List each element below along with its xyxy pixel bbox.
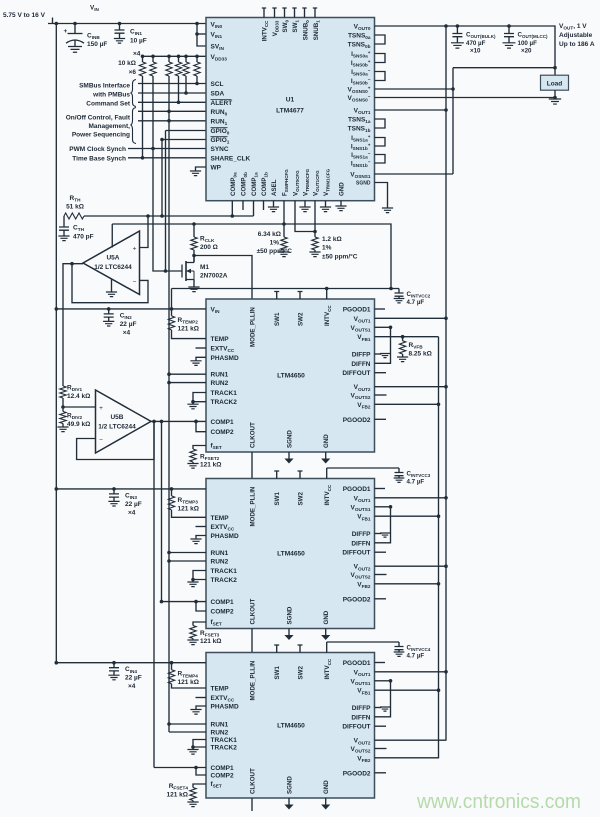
svg-text:DIFFN: DIFFN	[351, 714, 370, 721]
svg-text:22 µF: 22 µF	[120, 321, 137, 328]
svg-text:1.2 kΩ: 1.2 kΩ	[322, 236, 342, 243]
svg-text:10 µF: 10 µF	[130, 38, 147, 45]
svg-text:COMP1: COMP1	[211, 599, 235, 606]
svg-text:M1: M1	[200, 264, 209, 271]
svg-text:ALERT: ALERT	[211, 100, 233, 107]
svg-text:1/2 LTC6244: 1/2 LTC6244	[94, 264, 132, 271]
svg-text:PHASMD: PHASMD	[211, 355, 239, 362]
svg-text:DIFFOUT: DIFFOUT	[342, 550, 370, 557]
svg-text:RUN1: RUN1	[211, 550, 229, 557]
svg-text:121 kΩ: 121 kΩ	[200, 638, 221, 645]
svg-text:GND: GND	[323, 434, 330, 448]
svg-text:PGOOD1: PGOOD1	[343, 486, 371, 493]
svg-text:470 µF: 470 µF	[466, 40, 486, 47]
svg-text:470 pF: 470 pF	[73, 234, 94, 241]
svg-text:DIFFOUT: DIFFOUT	[342, 724, 370, 731]
svg-text:×4: ×4	[128, 509, 136, 516]
svg-text:SW2: SW2	[298, 666, 305, 680]
svg-text:PHASMD: PHASMD	[211, 533, 239, 540]
svg-text:121 kΩ: 121 kΩ	[167, 792, 188, 799]
svg-text:WP: WP	[211, 165, 222, 172]
svg-text:2N7002A: 2N7002A	[200, 273, 228, 280]
svg-text:CLKOUT: CLKOUT	[250, 599, 257, 625]
svg-text:×4: ×4	[123, 329, 131, 336]
svg-text:PGOOD1: PGOOD1	[343, 307, 371, 314]
svg-text:×4: ×4	[133, 51, 141, 58]
svg-text:TEMP: TEMP	[211, 686, 230, 693]
svg-text:CLKOUT: CLKOUT	[250, 768, 257, 794]
svg-text:ASEL: ASEL	[271, 179, 278, 196]
svg-text:www.cntronics.com: www.cntronics.com	[416, 790, 581, 813]
svg-text:SW1: SW1	[274, 492, 281, 506]
svg-text:Command Set: Command Set	[86, 101, 131, 108]
svg-text:121 kΩ: 121 kΩ	[178, 505, 199, 512]
svg-text:6.34 kΩ: 6.34 kΩ	[258, 231, 281, 238]
svg-text:121 kΩ: 121 kΩ	[178, 679, 199, 686]
svg-text:MODE_PLLIN: MODE_PLLIN	[250, 486, 257, 526]
svg-text:Up to 186 A: Up to 186 A	[559, 41, 595, 48]
svg-text:150 µF: 150 µF	[87, 41, 107, 48]
svg-text:51 kΩ: 51 kΩ	[66, 204, 84, 211]
svg-text:TRACK1: TRACK1	[211, 568, 238, 575]
svg-text:COMP2: COMP2	[211, 773, 235, 780]
svg-text:121 kΩ: 121 kΩ	[178, 325, 199, 332]
svg-text:±50 ppm/°C: ±50 ppm/°C	[322, 253, 358, 261]
svg-text:Adjustable: Adjustable	[559, 32, 593, 39]
svg-text:DIFFN: DIFFN	[351, 540, 370, 547]
svg-text:VOUT, 1 V: VOUT, 1 V	[559, 23, 587, 31]
svg-text:LTM4650: LTM4650	[277, 373, 305, 380]
svg-text:COMP2: COMP2	[211, 609, 235, 616]
svg-text:12.4 kΩ: 12.4 kΩ	[67, 393, 90, 400]
svg-text:PGOOD1: PGOOD1	[343, 660, 371, 667]
svg-text:TEMP: TEMP	[211, 515, 230, 522]
svg-text:1/2 LTC6244: 1/2 LTC6244	[98, 424, 136, 431]
svg-text:MODE_PLLIN: MODE_PLLIN	[250, 307, 257, 347]
svg-text:COMP2: COMP2	[211, 429, 235, 436]
svg-text:LTM4650: LTM4650	[277, 722, 305, 729]
svg-text:GND: GND	[323, 610, 330, 624]
svg-text:SW1: SW1	[274, 312, 281, 326]
svg-text:5.75 V to 16 V: 5.75 V to 16 V	[3, 12, 46, 19]
svg-text:On/Off Control, Fault: On/Off Control, Fault	[66, 115, 131, 122]
svg-text:PGOOD2: PGOOD2	[343, 596, 371, 603]
svg-text:RUN1: RUN1	[211, 722, 229, 729]
svg-text:Power Sequencing: Power Sequencing	[72, 132, 130, 139]
svg-text:+: +	[133, 246, 137, 253]
svg-text:SGND: SGND	[287, 776, 294, 794]
svg-text:4.7 µF: 4.7 µF	[407, 299, 425, 306]
svg-text:U5A: U5A	[106, 255, 119, 262]
svg-text:×4: ×4	[128, 683, 136, 690]
svg-text:TRACK2: TRACK2	[211, 577, 238, 584]
svg-text:SGND: SGND	[356, 181, 371, 187]
svg-text:LTM4650: LTM4650	[277, 551, 305, 558]
svg-text:PHASMD: PHASMD	[211, 704, 239, 711]
svg-text:PWM Clock Synch: PWM Clock Synch	[69, 146, 126, 153]
svg-text:100 µF: 100 µF	[518, 40, 538, 47]
svg-text:PGOOD2: PGOOD2	[343, 417, 371, 424]
svg-text:×6: ×6	[129, 69, 137, 76]
svg-text:1%: 1%	[322, 245, 332, 252]
svg-text:4.7 µF: 4.7 µF	[407, 479, 425, 486]
svg-text:SMBus Interface: SMBus Interface	[79, 83, 130, 90]
svg-text:DIFFP: DIFFP	[352, 352, 371, 359]
svg-text:Time Base Synch: Time Base Synch	[72, 155, 126, 162]
svg-text:22 µF: 22 µF	[125, 675, 142, 682]
svg-text:RUN1: RUN1	[211, 372, 229, 379]
svg-text:LTM4677: LTM4677	[276, 108, 304, 115]
svg-text:Load: Load	[547, 81, 563, 88]
svg-text:Management,: Management,	[88, 123, 130, 130]
svg-text:RUN2: RUN2	[211, 380, 229, 387]
svg-text:PGOOD2: PGOOD2	[343, 770, 371, 777]
svg-text:1%: 1%	[270, 240, 280, 247]
svg-text:SHARE_CLK: SHARE_CLK	[211, 155, 251, 162]
svg-text:SNUB0: SNUB0	[303, 20, 311, 41]
svg-text:SYNC: SYNC	[211, 146, 229, 153]
svg-text:DIFFN: DIFFN	[351, 361, 370, 368]
svg-text:RUN2: RUN2	[211, 730, 229, 737]
svg-text:10 kΩ: 10 kΩ	[118, 60, 136, 67]
svg-text:4.7 µF: 4.7 µF	[407, 653, 425, 660]
svg-text:+: +	[64, 28, 68, 35]
svg-text:GND: GND	[339, 182, 346, 196]
svg-text:TRACK2: TRACK2	[211, 745, 238, 752]
svg-text:×20: ×20	[521, 48, 532, 55]
svg-text:SW2: SW2	[298, 312, 305, 326]
svg-text:8.25 kΩ: 8.25 kΩ	[409, 351, 432, 358]
svg-text:200 Ω: 200 Ω	[200, 244, 218, 251]
svg-text:MODE_PLLIN: MODE_PLLIN	[250, 660, 257, 700]
svg-text:×10: ×10	[470, 48, 481, 55]
svg-text:SW2: SW2	[298, 492, 305, 506]
svg-text:−: −	[133, 279, 137, 286]
svg-text:GND: GND	[323, 780, 330, 794]
svg-text:U1: U1	[286, 97, 295, 104]
svg-text:SNUB1: SNUB1	[313, 20, 321, 41]
svg-text:121 kΩ: 121 kΩ	[200, 462, 221, 469]
svg-text:COMP1: COMP1	[211, 765, 235, 772]
svg-text:SW1: SW1	[274, 666, 281, 680]
svg-text:TRACK1: TRACK1	[211, 737, 238, 744]
svg-text:DIFFOUT: DIFFOUT	[342, 370, 370, 377]
svg-text:±50 ppm/°C: ±50 ppm/°C	[257, 247, 293, 255]
svg-text:49.9 kΩ: 49.9 kΩ	[67, 421, 90, 428]
svg-text:with PMBus: with PMBus	[92, 92, 130, 99]
svg-text:22 µF: 22 µF	[125, 501, 142, 508]
svg-text:DIFFP: DIFFP	[352, 531, 371, 538]
svg-text:SCL: SCL	[211, 81, 224, 88]
svg-text:DIFFP: DIFFP	[352, 705, 371, 712]
svg-text:SGND: SGND	[287, 430, 294, 448]
svg-text:CLKOUT: CLKOUT	[250, 422, 257, 448]
svg-text:COMP1: COMP1	[211, 419, 235, 426]
svg-text:TRACK2: TRACK2	[211, 399, 238, 406]
svg-text:+: +	[99, 405, 103, 412]
svg-text:SGND: SGND	[287, 606, 294, 624]
svg-text:TEMP: TEMP	[211, 336, 230, 343]
svg-text:U5B: U5B	[110, 414, 123, 421]
svg-text:RUN2: RUN2	[211, 559, 229, 566]
svg-text:SDA: SDA	[211, 91, 225, 98]
svg-text:−: −	[99, 437, 103, 444]
svg-text:TRACK1: TRACK1	[211, 390, 238, 397]
